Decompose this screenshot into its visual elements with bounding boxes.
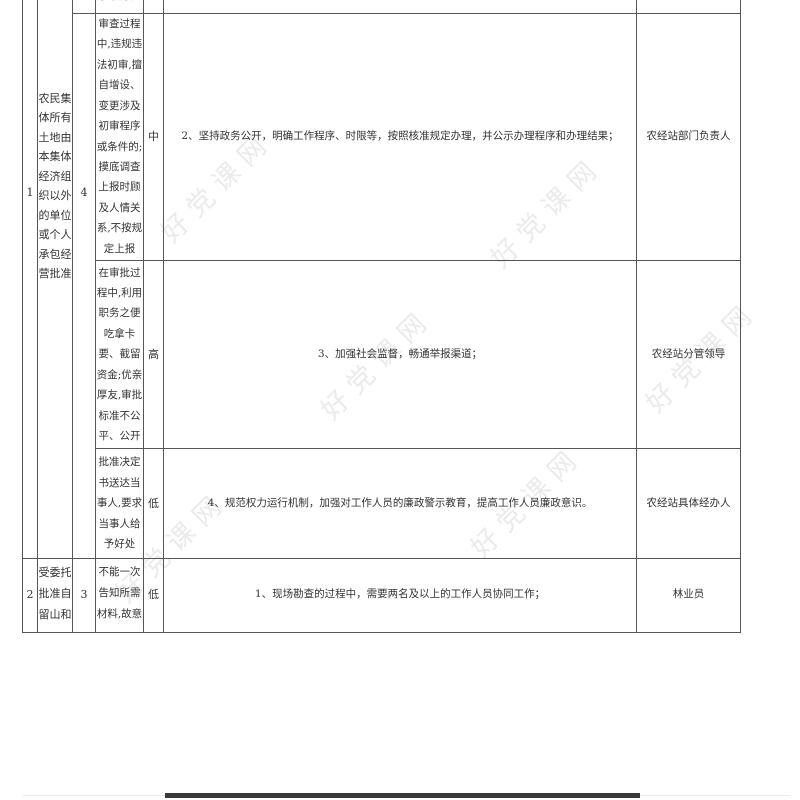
seq-cell: 2 — [23, 588, 37, 602]
risk-no-cell: 4 — [73, 186, 95, 200]
table-border — [22, 632, 741, 633]
measure-cell: 2、坚持政务公开，明确工作程序、时限等，按照核准规定办理，并公示办理程序和办理结… — [164, 13, 636, 260]
table-border — [740, 0, 741, 633]
risk-desc-cell: 不能一次告知所需材料,故意 — [96, 562, 143, 626]
document-page: 好党课网 好党课网 好党课网 好党课网 好党课网 好党课网 索取好处 1 农民集… — [0, 0, 800, 800]
authority-cell: 受委托批准自留山和 — [38, 562, 72, 624]
responsible-cell: 农经站部门负责人 — [637, 13, 740, 260]
responsible-cell: 农经站分管领导 — [637, 261, 740, 448]
risk-level-cell: 低 — [144, 449, 163, 558]
table-border — [72, 0, 73, 633]
responsible-cell: 林业员 — [637, 558, 740, 632]
risk-level-cell: 高 — [144, 261, 163, 448]
seq-cell: 1 — [23, 186, 37, 200]
risk-level-cell: 低 — [144, 558, 163, 632]
risk-desc-cell: 批准决定书送达当事人,要求当事人给予好处 — [96, 449, 143, 558]
risk-desc-cell: 在审批过程中,利用职务之便吃拿卡要、截留资金;优亲厚友,审批标准不公平、公开 — [96, 261, 143, 448]
risk-control-table: 索取好处 1 农民集体所有土地由本集体经济组织以外的单位或个人承包经营批准 4 … — [22, 0, 741, 633]
measure-cell: 4、规范权力运行机制，加强对工作人员的廉政警示教育，提高工作人员廉政意识。 — [164, 449, 636, 558]
measure-cell: 1、现场勘查的过程中，需要两名及以上的工作人员协同工作； — [164, 558, 636, 632]
next-page-bar — [165, 793, 640, 798]
risk-no-cell: 3 — [73, 588, 95, 602]
authority-cell: 农民集体所有土地由本集体经济组织以外的单位或个人承包经营批准 — [38, 86, 72, 286]
risk-level-cell: 中 — [144, 13, 163, 260]
risk-desc-cell-partial: 索取好处 — [96, 0, 143, 12]
table-border — [22, 0, 23, 633]
risk-desc-cell: 审查过程中,违规违法初审,擅自增设、变更涉及初审程序或条件的;摸底调查上报时顾及… — [96, 13, 143, 260]
measure-cell: 3、加强社会监督，畅通举报渠道； — [164, 261, 636, 448]
responsible-cell: 农经站具体经办人 — [637, 449, 740, 558]
